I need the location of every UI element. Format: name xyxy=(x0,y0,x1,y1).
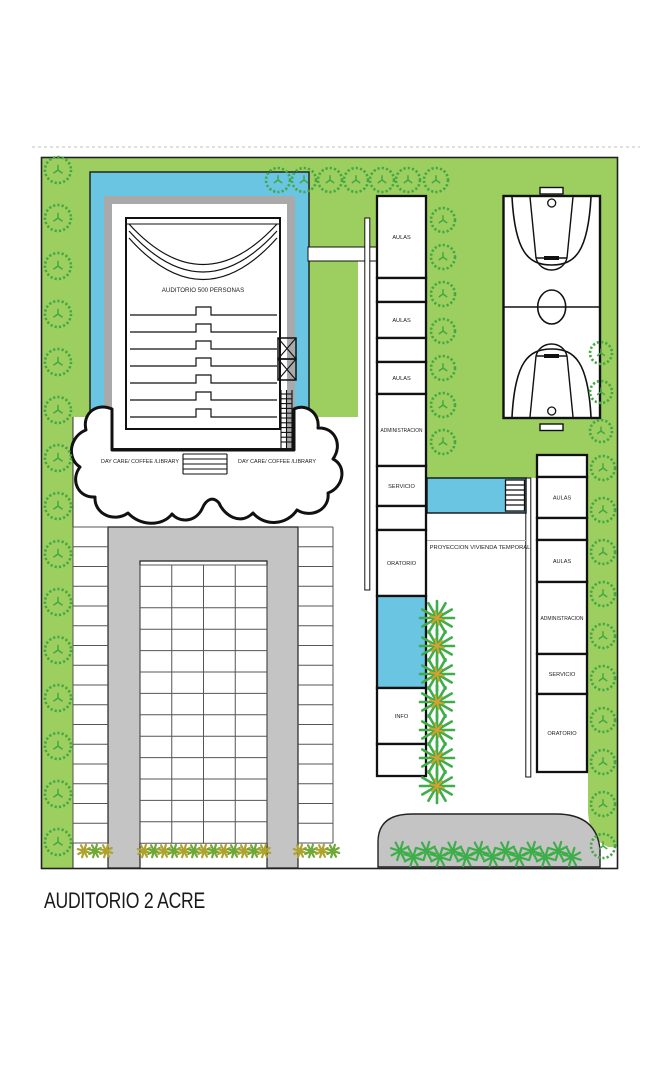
room-label: AULAS xyxy=(392,318,411,324)
room-label: AULAS xyxy=(553,496,572,502)
room-box: SERVICIO xyxy=(537,654,587,694)
room-label: ORATORIO xyxy=(547,731,577,737)
backboard-top xyxy=(540,188,563,195)
room-label: ORATORIO xyxy=(387,561,417,567)
middle-room-column: AULASAULASAULASADMINISTRACIONSERVICIOORA… xyxy=(377,196,426,776)
room-box xyxy=(377,506,426,530)
room-box xyxy=(377,338,426,362)
room-box: ORATORIO xyxy=(377,530,426,596)
room-box: AULAS xyxy=(537,477,587,518)
room-label: INFO xyxy=(395,714,409,720)
projection-label: PROYECCION VIVIENDA TEMPORAL xyxy=(430,545,531,551)
room-box xyxy=(377,278,426,302)
room-label: ADMINISTRACION xyxy=(541,616,584,622)
room-box: INFO xyxy=(377,688,426,744)
basketball-court xyxy=(504,188,601,431)
daycare-label-left: DAY CARE/ COFFEE /LIBRARY xyxy=(101,459,179,465)
drawing-title: AUDITORIO 2 ACRE xyxy=(44,889,205,913)
right-room-column: AULASAULASADMINISTRACIONSERVICIOORATORIO xyxy=(537,455,587,772)
backboard-bottom xyxy=(540,424,563,431)
room-box: ADMINISTRACION xyxy=(377,394,426,466)
room-label: SERVICIO xyxy=(549,672,576,678)
room-box: ADMINISTRACION xyxy=(537,582,587,654)
room-label: SERVICIO xyxy=(388,484,415,490)
room-box xyxy=(537,518,587,540)
auditorium-block: AUDITORIO 500 PERSONAS xyxy=(90,172,309,456)
covered-walk-wall-right xyxy=(526,478,531,777)
room-box: AULAS xyxy=(377,362,426,394)
room-label: AULAS xyxy=(392,235,411,241)
room-box xyxy=(377,744,426,776)
room-box xyxy=(377,596,426,688)
site-plan-page: AUDITORIO 500 PERSONAS DAY CARE/ COFFEE … xyxy=(0,0,662,1067)
covered-walk-wall-left xyxy=(365,218,370,590)
room-label: ADMINISTRACION xyxy=(381,428,423,434)
room-box: AULAS xyxy=(377,196,426,278)
room-box: AULAS xyxy=(377,302,426,338)
room-label: AULAS xyxy=(553,559,572,565)
parking-lot xyxy=(73,527,333,868)
site-plan-drawing: AUDITORIO 500 PERSONAS DAY CARE/ COFFEE … xyxy=(0,0,662,1067)
room-label: AULAS xyxy=(392,376,411,382)
room-box xyxy=(537,455,587,477)
room-box: ORATORIO xyxy=(537,694,587,772)
room-box: SERVICIO xyxy=(377,466,426,506)
room-box: AULAS xyxy=(537,540,587,582)
water-strip xyxy=(427,478,526,513)
daycare-label-right: DAY CARE/ COFFEE /LIBRARY xyxy=(238,459,316,465)
auditorium-label: AUDITORIO 500 PERSONAS xyxy=(162,287,244,294)
